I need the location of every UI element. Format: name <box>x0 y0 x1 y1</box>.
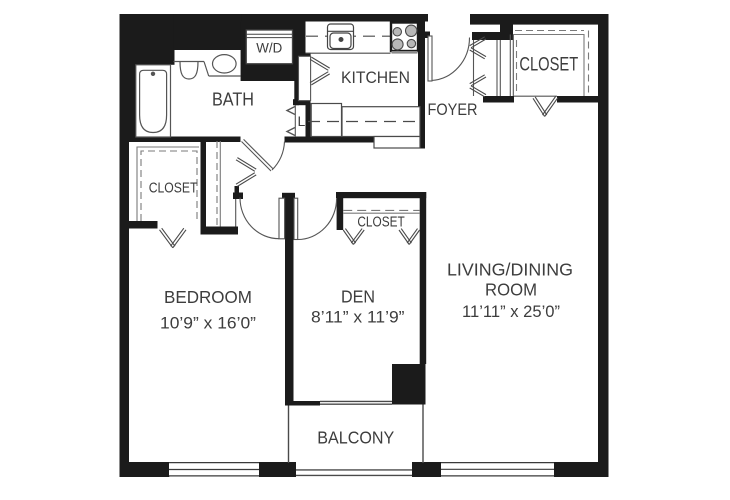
svg-text:KITCHEN: KITCHEN <box>341 68 410 87</box>
svg-text:8’11” x 11’9”: 8’11” x 11’9” <box>311 309 405 327</box>
svg-text:CLOSET: CLOSET <box>357 213 404 230</box>
svg-text:CLOSET: CLOSET <box>519 55 578 76</box>
svg-text:CLOSET: CLOSET <box>149 180 198 197</box>
svg-text:W/D: W/D <box>256 41 282 56</box>
svg-text:11’11” x 25’0”: 11’11” x 25’0” <box>462 303 560 321</box>
svg-text:ROOM: ROOM <box>485 280 537 300</box>
svg-text:LIVING/DINING: LIVING/DINING <box>447 260 573 280</box>
svg-text:L: L <box>298 113 306 129</box>
svg-text:BATH: BATH <box>212 90 254 110</box>
svg-text:BALCONY: BALCONY <box>317 428 394 448</box>
svg-text:DEN: DEN <box>341 287 375 307</box>
svg-text:10’9” x 16’0”: 10’9” x 16’0” <box>160 315 256 333</box>
svg-text:BEDROOM: BEDROOM <box>164 287 252 307</box>
svg-text:FOYER: FOYER <box>428 100 478 119</box>
